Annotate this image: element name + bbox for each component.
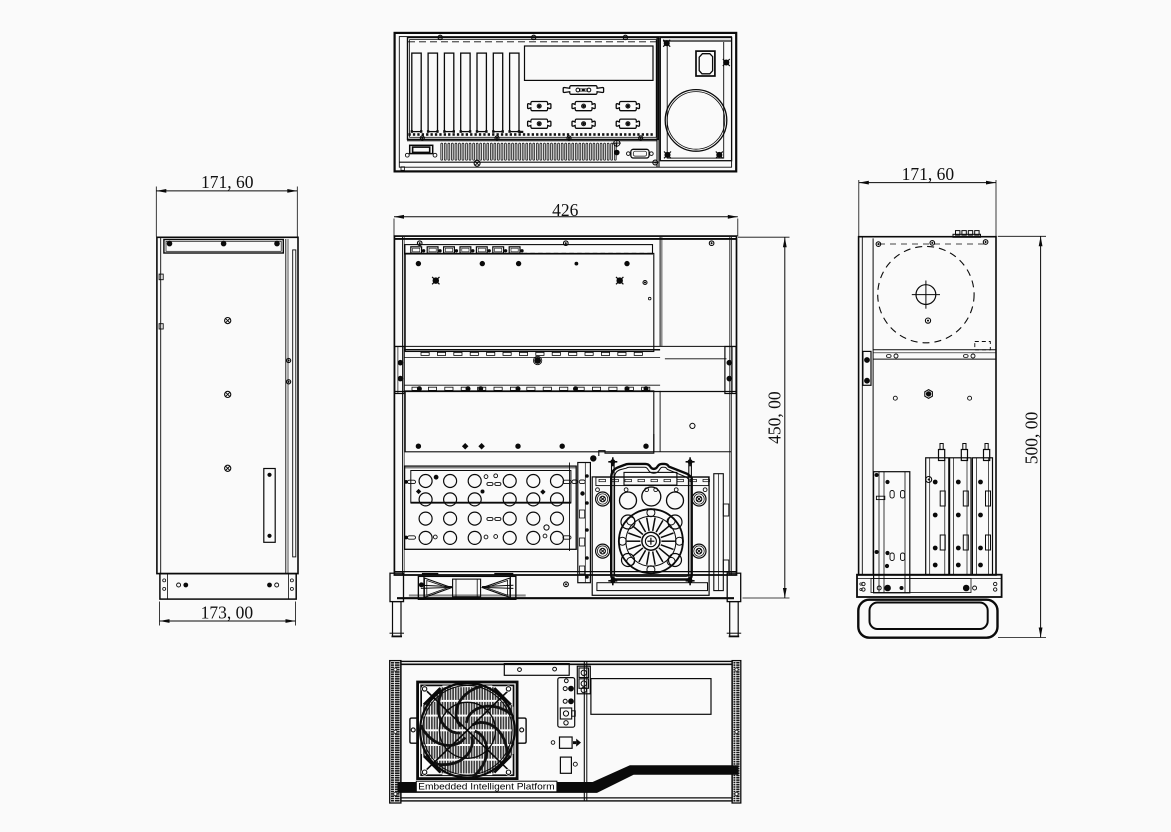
svg-text:500, 00: 500, 00 <box>1021 412 1041 465</box>
svg-text:171, 60: 171, 60 <box>902 164 955 184</box>
svg-text:450, 00: 450, 00 <box>765 391 785 444</box>
svg-text:Embedded Intelligent Platfor: Embedded Intelligent Platform <box>418 782 555 792</box>
svg-text:173, 00: 173, 00 <box>201 603 254 623</box>
svg-text:171, 60: 171, 60 <box>201 172 254 192</box>
